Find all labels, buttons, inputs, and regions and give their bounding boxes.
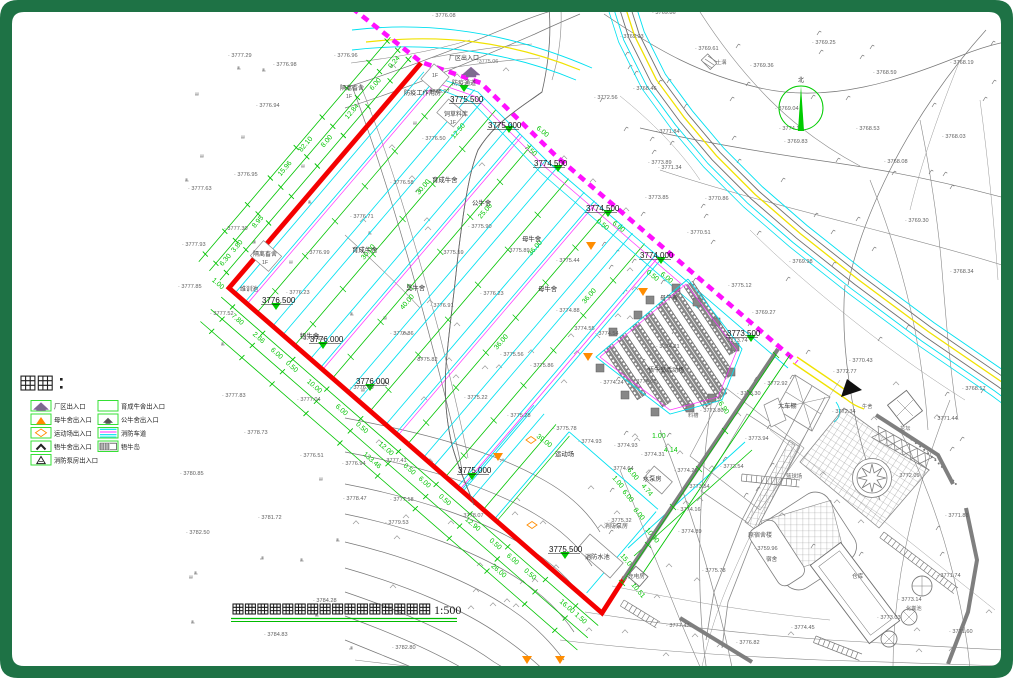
svg-text:· 3770.43: · 3770.43	[849, 358, 873, 364]
svg-text:· 3769.27: · 3769.27	[752, 310, 776, 316]
svg-text:·3775.06: ·3775.06	[477, 59, 498, 65]
svg-text:运动场: 运动场	[555, 449, 574, 458]
svg-text:· 3775.12: · 3775.12	[728, 283, 752, 289]
svg-text:· 3776.23: · 3776.23	[480, 291, 504, 297]
svg-text:· 3772.09: · 3772.09	[896, 473, 920, 479]
svg-text:充电房: 充电房	[628, 572, 645, 580]
svg-text:厂区出入口: 厂区出入口	[54, 402, 85, 411]
svg-text:3775.000: 3775.000	[458, 466, 492, 475]
svg-text:牾牛舍出入口: 牾牛舍出入口	[54, 442, 92, 451]
svg-text:隔离畜舍: 隔离畜舍	[340, 84, 364, 92]
svg-text:消防泵房: 消防泵房	[604, 522, 628, 530]
svg-text:· 3773.94: · 3773.94	[745, 436, 769, 442]
svg-text:防疫工作用房: 防疫工作用房	[404, 89, 441, 97]
svg-text:篮球场: 篮球场	[786, 472, 803, 480]
svg-text:消防泵房出入口: 消防泵房出入口	[54, 456, 98, 465]
svg-text:· 3773.80: · 3773.80	[700, 408, 724, 414]
svg-text:· 3772.77: · 3772.77	[833, 369, 857, 375]
svg-text:· 3773.54: · 3773.54	[720, 464, 744, 470]
svg-text:· 3774.31: · 3774.31	[641, 452, 665, 458]
svg-text:3775.500: 3775.500	[549, 545, 583, 554]
svg-text:· 3769.61: · 3769.61	[695, 46, 719, 52]
svg-text:公牛舍出入口: 公牛舍出入口	[121, 415, 159, 424]
svg-text:仓库: 仓库	[852, 572, 864, 580]
svg-text:牾牛岛活动场: 牾牛岛活动场	[648, 366, 684, 374]
svg-text:4.14: 4.14	[664, 447, 678, 454]
svg-text:· 3776.71: · 3776.71	[350, 214, 374, 220]
svg-text:· 3784.83: · 3784.83	[264, 632, 288, 638]
svg-text:消防车道: 消防车道	[121, 429, 147, 438]
svg-text:· 3768.34: · 3768.34	[950, 269, 974, 275]
svg-text:· 3775.89: · 3775.89	[506, 248, 530, 254]
svg-text:· 3769.36: · 3769.36	[750, 63, 774, 69]
svg-text:育成牛舍: 育成牛舍	[352, 245, 378, 254]
svg-text:· 3770.51: · 3770.51	[687, 230, 711, 236]
svg-text:3774.500: 3774.500	[534, 159, 568, 168]
svg-text:水泵房: 水泵房	[643, 475, 662, 483]
svg-text:母牛舍: 母牛舍	[538, 284, 558, 293]
svg-text:· 3768.19: · 3768.19	[950, 60, 974, 66]
svg-text:· 3773.74: · 3773.74	[724, 338, 748, 344]
svg-text:· 3776.08: · 3776.08	[432, 13, 456, 19]
svg-text:母牛舍出入口: 母牛舍出入口	[54, 415, 92, 424]
svg-text:消防水池: 消防水池	[585, 553, 610, 561]
svg-text:牾牛岛: 牾牛岛	[121, 442, 140, 451]
svg-text:· 3778.73: · 3778.73	[244, 430, 268, 436]
svg-text:· 3773.89: · 3773.89	[648, 160, 672, 166]
svg-text:· 3769.25: · 3769.25	[812, 40, 836, 46]
svg-text:· 3776.98: · 3776.98	[273, 62, 297, 68]
svg-text:1F: 1F	[432, 73, 438, 79]
svg-text:· 3773.54: · 3773.54	[686, 484, 710, 490]
svg-text:育成牛舍: 育成牛舍	[432, 175, 458, 184]
svg-text:北: 北	[798, 76, 804, 84]
svg-text:· 3774.16: · 3774.16	[677, 507, 701, 513]
svg-text:饲草料库: 饲草料库	[444, 110, 468, 118]
svg-text:育成牛舍出入口: 育成牛舍出入口	[121, 402, 165, 411]
svg-text:· 3776.94: · 3776.94	[256, 103, 280, 109]
svg-text:· 3775.82: · 3775.82	[414, 357, 438, 363]
svg-text:· 3777.52: · 3777.52	[210, 311, 234, 317]
svg-text:· 3784.28: · 3784.28	[313, 598, 337, 604]
svg-text:· 3777.18: · 3777.18	[390, 497, 414, 503]
svg-text:运动场出入口: 运动场出入口	[54, 429, 92, 438]
svg-text:· 3775.44: · 3775.44	[556, 258, 580, 264]
svg-text:· 3776.94: · 3776.94	[342, 461, 366, 467]
svg-text:· 3777.85: · 3777.85	[178, 284, 202, 290]
svg-text:· 3774.88: · 3774.88	[556, 308, 580, 314]
svg-text:· 3774.21: · 3774.21	[656, 344, 680, 350]
svg-text:· 3777.04: · 3777.04	[297, 397, 321, 403]
svg-text:狊牛舍: 狊牛舍	[406, 283, 426, 292]
svg-text:防疫通道: 防疫通道	[452, 79, 476, 87]
svg-text:· 3776.96: · 3776.96	[334, 53, 358, 59]
svg-text:· 3768.17: · 3768.17	[962, 386, 986, 392]
svg-text:· 3771.84: · 3771.84	[656, 129, 680, 135]
svg-text:· 3777.83: · 3777.83	[222, 393, 246, 399]
svg-text:· 3774.24: · 3774.24	[600, 380, 624, 386]
svg-text:· 3774.03: · 3774.03	[633, 379, 657, 385]
svg-text:大车棚: 大车棚	[778, 402, 797, 410]
svg-text:· 3776.40: · 3776.40	[350, 385, 374, 391]
svg-text:母牛舍: 母牛舍	[522, 234, 542, 243]
svg-text:· 3774.45: · 3774.45	[791, 625, 815, 631]
svg-text:· 3769.98: · 3769.98	[789, 259, 813, 265]
svg-text:隔离畜舍: 隔离畜舍	[253, 250, 277, 258]
svg-text:· 3779.53: · 3779.53	[385, 520, 409, 526]
svg-text:· 3769.93: · 3769.93	[620, 34, 644, 40]
svg-text:· 3771.88: · 3771.88	[945, 513, 969, 519]
svg-text:· 3776.86: · 3776.86	[390, 331, 414, 337]
svg-text:3775.500: 3775.500	[450, 95, 484, 104]
svg-text:3773.500: 3773.500	[727, 329, 761, 338]
svg-text:· 3774.55: · 3774.55	[571, 326, 595, 332]
svg-text:· 3759.96: · 3759.96	[754, 546, 778, 552]
svg-text:· 3782.80: · 3782.80	[392, 645, 416, 651]
svg-text:· 3776.51: · 3776.51	[300, 453, 324, 459]
svg-text:牾牛舍: 牾牛舍	[300, 331, 320, 340]
svg-text:· 3778.07: · 3778.07	[460, 513, 484, 519]
svg-text:· 3776.58: · 3776.58	[390, 180, 414, 186]
svg-text:牛舍: 牛舍	[862, 402, 873, 410]
svg-text:1F: 1F	[450, 120, 456, 126]
svg-text:· 3773.03: · 3773.03	[877, 615, 901, 621]
svg-text:· 3777.30: · 3777.30	[224, 226, 248, 232]
svg-text:· 3768.53: · 3768.53	[856, 126, 880, 132]
svg-text:厂区出入口: 厂区出入口	[449, 54, 479, 62]
svg-text:维训池: 维训池	[240, 285, 258, 293]
svg-text:· 3774.26: · 3774.26	[674, 468, 698, 474]
svg-text:· 3778.47: · 3778.47	[343, 496, 367, 502]
svg-text:· 3772.92: · 3772.92	[764, 381, 788, 387]
svg-text:· 3774.54: · 3774.54	[595, 331, 619, 337]
svg-text:· 3768.08: · 3768.08	[884, 159, 908, 165]
svg-text:料槽: 料槽	[688, 411, 698, 419]
svg-text:· 3776.23: · 3776.23	[286, 290, 310, 296]
svg-text:· 3768.59: · 3768.59	[873, 70, 897, 76]
svg-text:· 3777.29: · 3777.29	[228, 53, 252, 59]
svg-text:· 3774.64: · 3774.64	[610, 466, 634, 472]
svg-text:· 3768.46: · 3768.46	[633, 86, 657, 92]
svg-text:1F: 1F	[346, 94, 352, 100]
svg-text:· 3776.95: · 3776.95	[234, 172, 258, 178]
svg-text:· 3773.85: · 3773.85	[645, 195, 669, 201]
svg-text:原宿舍楼: 原宿舍楼	[748, 531, 772, 539]
svg-text:公牛舍: 公牛舍	[472, 198, 492, 207]
svg-text:花坛: 花坛	[900, 424, 910, 432]
svg-text:· 3782.50: · 3782.50	[186, 530, 210, 536]
svg-text:· 3775.78: · 3775.78	[553, 426, 577, 432]
svg-text:· 3775.78: · 3775.78	[702, 568, 726, 574]
svg-text:· 3773.14: · 3773.14	[898, 597, 922, 603]
svg-text:3776.500: 3776.500	[262, 296, 296, 305]
svg-text:· 3776.99: · 3776.99	[306, 250, 330, 256]
svg-text:宿舍: 宿舍	[766, 555, 778, 563]
svg-text:3774.500: 3774.500	[586, 204, 620, 213]
svg-text:· 3776.82: · 3776.82	[736, 640, 760, 646]
svg-text:· 3774.93: · 3774.93	[614, 443, 638, 449]
svg-text:· 3777.63: · 3777.63	[188, 186, 212, 192]
svg-text:· 3776.91: · 3776.91	[430, 303, 454, 309]
svg-text:· 3770.86: · 3770.86	[705, 196, 729, 202]
svg-text:· 3775.22: · 3775.22	[464, 395, 488, 401]
svg-text:· 3777.47: · 3777.47	[666, 623, 690, 629]
svg-text:· 3775.59: · 3775.59	[440, 250, 464, 256]
svg-text:· 3769.30: · 3769.30	[905, 218, 929, 224]
svg-text:· 3775.86: · 3775.86	[530, 363, 554, 369]
svg-text:· 3781.72: · 3781.72	[258, 515, 282, 521]
svg-text:· 3771.60: · 3771.60	[949, 629, 973, 635]
svg-text:· 3777.93: · 3777.93	[182, 242, 206, 248]
svg-text:· 3771.74: · 3771.74	[937, 573, 961, 579]
svg-text:1F: 1F	[262, 260, 268, 266]
svg-text:化粪池: 化粪池	[906, 604, 922, 612]
svg-text:· 3775.56: · 3775.56	[500, 352, 524, 358]
svg-text:· 3768.03: · 3768.03	[942, 134, 966, 140]
svg-text:· 3774.89: · 3774.89	[678, 529, 702, 535]
svg-text:· 3772.34: · 3772.34	[832, 409, 856, 415]
svg-text:1:500: 1:500	[434, 603, 461, 617]
svg-text:· 3776.50: · 3776.50	[422, 136, 446, 142]
svg-text:3775.000: 3775.000	[488, 121, 522, 130]
svg-text:母牛舍: 母牛舍	[660, 294, 678, 302]
svg-text:· 3775.28: · 3775.28	[507, 413, 531, 419]
svg-text:3774.000: 3774.000	[640, 251, 674, 260]
svg-text:· 3773.30: · 3773.30	[737, 391, 761, 397]
svg-text:· 3772.56: · 3772.56	[594, 95, 618, 101]
svg-text:· 3777.41: · 3777.41	[383, 458, 407, 464]
svg-text:· 3769.83: · 3769.83	[784, 139, 808, 145]
svg-text:土溝: 土溝	[716, 58, 726, 66]
svg-text:· 3780.85: · 3780.85	[180, 471, 204, 477]
svg-text:· 3775.90: · 3775.90	[468, 224, 492, 230]
svg-text:· 3774.93: · 3774.93	[578, 439, 602, 445]
svg-text:· 3771.44: · 3771.44	[934, 416, 958, 422]
